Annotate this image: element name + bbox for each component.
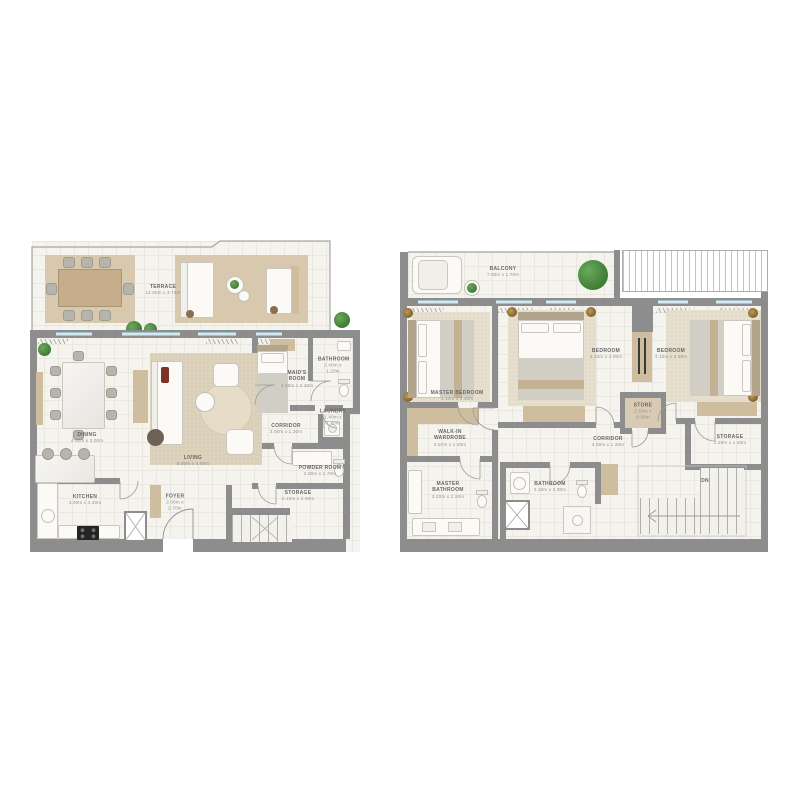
room-label-master-bathroom: MASTER BATHROOM 3.20m x 2.20m: [420, 481, 476, 499]
planter-basket: [186, 310, 194, 318]
room-dims: 3.00m x 1.20m: [268, 429, 304, 435]
window: [546, 300, 576, 304]
room-dims: 2.40m x 3.40m: [279, 382, 315, 388]
nightstand-plant: [586, 307, 596, 317]
bathroom-sink: [337, 341, 351, 351]
table-plant: [467, 283, 477, 293]
window: [716, 300, 752, 304]
armchair: [226, 429, 254, 455]
window: [122, 332, 180, 336]
accent-pillow: [161, 367, 169, 383]
room-dims: 12.00m x 3.70m: [133, 290, 193, 296]
outdoor-chair: [81, 257, 93, 268]
room-dims: 2.00m x 1.70m: [298, 471, 342, 477]
room-label-foyer: FOYER 2.00m x 2.70m: [160, 493, 190, 511]
dining-chair: [50, 410, 61, 420]
wall: [492, 430, 498, 539]
dining-chair: [106, 388, 117, 398]
side-table: [238, 290, 250, 302]
staircase: [232, 515, 292, 542]
bed-throw: [518, 380, 584, 389]
room-label-bedroom-3: BEDROOM 4.10m x 3.00m: [654, 348, 688, 360]
wall: [648, 428, 666, 434]
room-dims: 1.40m x 1.40m: [319, 415, 347, 426]
wardrobe-handle: [638, 338, 640, 374]
nightstand-plant: [403, 308, 413, 318]
wall: [400, 539, 768, 552]
room-label-kitchen: KITCHEN 3.00m x 4.20m: [67, 494, 103, 506]
bed-throw: [454, 320, 462, 398]
stairs-dn-text: DN: [695, 478, 715, 484]
room-dims: 2.20m x 1.40m: [710, 440, 750, 446]
kitchen-sink: [41, 509, 55, 523]
wardrobe-handle: [644, 338, 646, 374]
wall: [500, 462, 550, 468]
wall: [353, 330, 360, 414]
dining-chair: [50, 388, 61, 398]
wardrobe: [523, 406, 585, 422]
sideboard: [133, 370, 148, 423]
room-label-corridor: CORRIDOR 4.00m x 1.20m: [590, 436, 626, 448]
room-label-corridor: CORRIDOR 3.00m x 1.20m: [268, 423, 304, 435]
wardrobe-shelving: [407, 408, 479, 424]
outdoor-chair: [46, 283, 57, 295]
pillow: [418, 361, 427, 394]
wall: [570, 462, 595, 468]
island-wardrobe: [632, 332, 652, 382]
pillow: [742, 360, 751, 392]
dining-chair: [106, 366, 117, 376]
outdoor-chair: [63, 257, 75, 268]
bar-stool: [60, 448, 72, 460]
staircase-lower-flight: [640, 498, 700, 534]
pillow: [742, 324, 751, 356]
service-shaft: [504, 500, 530, 530]
room-label-terrace: TERRACE 12.00m x 3.70m: [133, 284, 193, 296]
floorplan-canvas: TERRACE 12.00m x 3.70m DINING 4.00m x 3.…: [0, 0, 800, 800]
room-dims: 5.00m x 4.00m: [173, 461, 213, 467]
stove: [77, 526, 99, 540]
wall: [400, 298, 407, 552]
room-label-powder-room: POWDER ROOM 2.00m x 1.70m: [298, 465, 342, 477]
wall: [715, 418, 768, 424]
room-dims: 4.10m x 3.40m: [429, 396, 485, 402]
bed-headboard: [408, 320, 416, 398]
outdoor-dining-table: [58, 269, 122, 307]
window: [198, 332, 236, 336]
room-dims: 2.40m x 1.20m: [318, 363, 348, 374]
dining-chair: [50, 366, 61, 376]
room-label-bedroom-2: BEDROOM 4.10m x 3.00m: [589, 348, 623, 360]
bed-blanket: [690, 320, 724, 396]
room-dims: 2.07m x 1.40m: [428, 441, 472, 447]
coffee-table: [195, 392, 215, 412]
wardrobe: [697, 402, 757, 416]
wall: [478, 402, 492, 408]
bed-headboard: [518, 312, 584, 320]
outdoor-chair: [81, 310, 93, 321]
room-dims: 2.00m x 2.70m: [160, 500, 190, 511]
sink: [448, 522, 462, 532]
sink: [513, 477, 526, 490]
plant: [38, 343, 51, 356]
wall: [226, 508, 290, 515]
room-name: MASTER BATHROOM: [420, 481, 476, 494]
console-cabinet: [36, 372, 43, 425]
wall: [685, 424, 691, 464]
window: [496, 300, 532, 304]
wall: [30, 330, 37, 552]
wall: [343, 408, 350, 539]
wall: [252, 483, 258, 489]
toilet-bowl: [477, 495, 487, 508]
floor-plan-upper-level: BALCONY 7.00m x 1.70m MASTER BEDROOM 4.1…: [400, 250, 768, 552]
room-label-walk-in-wardrobe: WALK-IN WARDROBE 2.07m x 1.40m: [428, 429, 472, 447]
wall: [276, 483, 350, 489]
wall: [632, 306, 653, 332]
wall: [620, 428, 632, 434]
room-dims: 3.20m x 2.20m: [420, 493, 476, 499]
room-label-storage: STORAGE 2.20m x 1.40m: [710, 434, 750, 446]
wall: [480, 456, 492, 462]
nightstand-plant: [748, 308, 758, 318]
planter-basket: [270, 306, 278, 314]
stairs-down-label: DN: [695, 478, 715, 484]
bed-throw: [710, 320, 718, 396]
room-label-bathroom: BATHROOM 3.10m x 2.00m: [532, 481, 568, 493]
bathtub: [292, 451, 332, 466]
plant: [334, 312, 350, 328]
armchair: [213, 363, 239, 387]
service-shaft: [124, 511, 147, 542]
wall: [498, 422, 596, 428]
curtain-mark: [206, 339, 238, 344]
outdoor-chair: [63, 310, 75, 321]
dining-chair: [73, 351, 84, 361]
dining-chair: [106, 410, 117, 420]
wall: [290, 405, 315, 411]
ottoman: [147, 429, 164, 446]
plant: [578, 260, 608, 290]
sink: [422, 522, 436, 532]
room-dims: 2.10m x 2.00m: [278, 496, 318, 502]
room-dims: 1.50m x 0.90m: [628, 409, 658, 420]
window: [418, 300, 458, 304]
wall: [614, 250, 620, 298]
room-dims: 4.10m x 3.00m: [589, 354, 623, 360]
pillow: [553, 323, 581, 333]
wardrobe-shelving: [407, 424, 418, 456]
room-dims: 7.00m x 1.70m: [478, 272, 528, 278]
pillow: [521, 323, 549, 333]
room-label-dining: DINING 4.00m x 3.00m: [67, 432, 107, 444]
shower-drain: [572, 515, 583, 526]
outdoor-chair: [99, 257, 111, 268]
dining-table: [62, 362, 105, 429]
nightstand-plant: [507, 307, 517, 317]
wall: [492, 306, 498, 408]
outdoor-chair: [99, 310, 111, 321]
room-name: WALK-IN WARDROBE: [428, 429, 472, 442]
table-plant: [230, 280, 239, 289]
room-label-master-bedroom: MASTER BEDROOM 4.10m x 3.40m: [429, 390, 485, 402]
window: [56, 332, 92, 336]
balcony-railing: [622, 250, 768, 292]
room-dims: 4.00m x 1.20m: [590, 442, 626, 448]
room-dims: 3.00m x 4.20m: [67, 500, 103, 506]
room-name: MAID'S ROOM: [279, 370, 315, 383]
bed-headboard: [752, 320, 760, 396]
room-label-living: LIVING 5.00m x 4.00m: [173, 455, 213, 467]
room-dims: 4.10m x 3.00m: [654, 354, 688, 360]
entry-door-gap: [163, 539, 193, 552]
room-label-balcony: BALCONY 7.00m x 1.70m: [478, 266, 528, 278]
toilet-bowl: [577, 485, 587, 498]
linen-closet: [601, 464, 618, 495]
room-label-maids-room: MAID'S ROOM 2.40m x 3.40m: [279, 370, 315, 388]
wall: [292, 443, 350, 449]
room-label-store: STORE 1.50m x 0.90m: [628, 402, 658, 420]
room-label-storage: STORAGE 2.10m x 2.00m: [278, 490, 318, 502]
bed-blanket: [518, 358, 584, 400]
window: [658, 300, 688, 304]
room-label-bathroom: BATHROOM 2.40m x 1.20m: [318, 356, 348, 374]
wall: [407, 456, 460, 462]
bar-stool: [78, 448, 90, 460]
chaise-cushion: [418, 260, 448, 290]
bar-stool: [42, 448, 54, 460]
room-dims: 4.00m x 3.00m: [67, 438, 107, 444]
window: [256, 332, 282, 336]
wall: [400, 252, 408, 298]
toilet-bowl: [339, 384, 349, 397]
wall: [661, 398, 666, 428]
room-label-laundry: LAUNDRY 1.40m x 1.40m: [319, 408, 347, 426]
room-dims: 3.10m x 2.00m: [532, 487, 568, 493]
pillow: [261, 353, 284, 363]
floor-plan-lower-level: TERRACE 12.00m x 3.70m DINING 4.00m x 3.…: [30, 233, 367, 552]
pillow: [418, 324, 427, 357]
